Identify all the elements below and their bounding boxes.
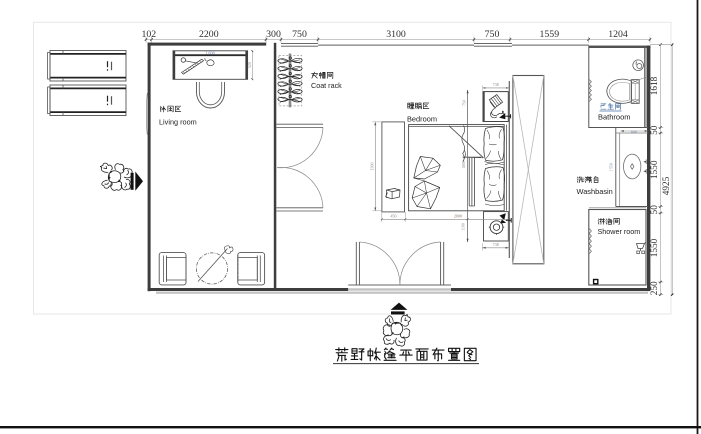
svg-text:750: 750 [485,29,500,40]
svg-text:Living room: Living room [159,118,197,127]
svg-text:738: 738 [493,82,499,87]
svg-text:Coat rack: Coat rack [311,81,342,90]
svg-text:750: 750 [462,100,466,106]
svg-text:750: 750 [292,29,307,40]
svg-text:50: 50 [650,125,660,135]
svg-text:1550: 1550 [650,238,660,257]
svg-text:2200: 2200 [199,29,219,40]
svg-text:520: 520 [248,62,252,68]
svg-text:300: 300 [266,29,281,40]
svg-text:1618: 1618 [650,76,660,95]
svg-text:3100: 3100 [386,29,406,40]
svg-text:4925: 4925 [662,176,672,195]
svg-text:1550: 1550 [650,160,660,179]
svg-text:1204: 1204 [608,29,628,40]
svg-text:1559: 1559 [540,29,560,40]
svg-text:450: 450 [391,214,397,219]
svg-text:1100: 1100 [461,223,465,231]
svg-text:Washbasin: Washbasin [577,187,613,196]
svg-text:Bathroom: Bathroom [598,113,631,122]
svg-text:1800: 1800 [462,161,466,169]
svg-text:50: 50 [650,205,660,215]
svg-text:1 550: 1 550 [609,163,613,172]
svg-text:1 600: 1 600 [205,50,214,55]
svg-text:600: 600 [631,129,637,134]
svg-text:250: 250 [650,281,660,295]
svg-text:1300: 1300 [370,163,375,171]
svg-text:2000: 2000 [454,214,462,219]
svg-text:738: 738 [493,242,499,247]
svg-text:102: 102 [141,29,156,40]
svg-text:Shower room: Shower room [598,227,641,236]
svg-text:Bedroom: Bedroom [407,115,437,124]
